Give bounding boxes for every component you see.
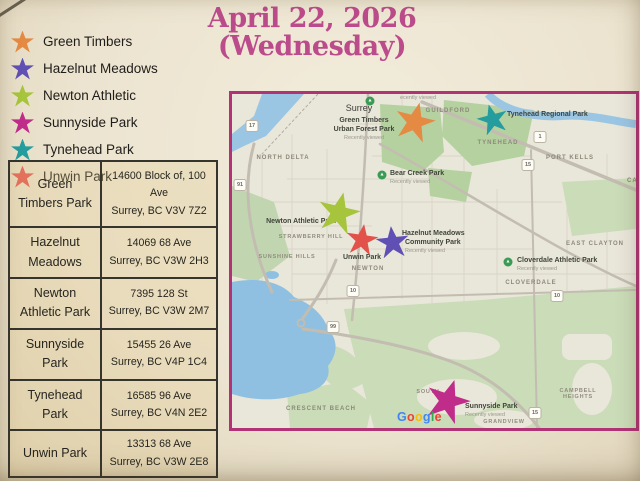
table-row: Sunnyside Park 15455 26 Ave Surrey, BC V… <box>9 329 217 380</box>
highway-shield: 1 <box>534 131 547 143</box>
table-row: Hazelnut Meadows 14069 68 Ave Surrey, BC… <box>9 227 217 278</box>
map-label: PORT KELLS <box>546 155 594 162</box>
legend-star-icon <box>11 58 34 80</box>
marker-star-green-timbers <box>391 98 439 145</box>
marker-star-unwin <box>344 222 380 257</box>
park-address-cell: 13313 68 Ave Surrey, BC V3W 2E8 <box>101 430 217 477</box>
legend-star-icon <box>11 31 34 53</box>
page-corner-mark <box>0 0 29 18</box>
address-line-2: Surrey, BC V3W 2M7 <box>106 303 212 320</box>
page-title: April 22, 2026 (Wednesday) <box>182 5 442 60</box>
table-row: Newton Athletic Park 7395 128 St Surrey,… <box>9 278 217 329</box>
map-label: Bear Creek Park <box>390 170 444 178</box>
map-label: EAST CLAYTON <box>566 241 624 248</box>
address-line-1: 13313 68 Ave <box>106 436 212 453</box>
map-label: Recently viewed <box>465 412 505 418</box>
map-label: Unwin Park <box>343 254 381 262</box>
map-label: SUNSHINE HILLS <box>258 254 315 260</box>
park-name-cell: Hazelnut Meadows <box>9 227 101 278</box>
legend-item-label: Newton Athletic <box>43 88 136 103</box>
map-label: Recently viewed <box>517 266 557 272</box>
map-label: NEWTON <box>352 266 385 273</box>
map-label: STRAWBERRY HILL <box>279 234 344 240</box>
highway-shield: 10 <box>347 285 360 297</box>
google-watermark-letter: e <box>435 410 442 424</box>
table-row: Unwin Park 13313 68 Ave Surrey, BC V3W 2… <box>9 430 217 477</box>
photographed-flyer: April 22, 2026 (Wednesday) Green Timbers… <box>0 0 640 481</box>
google-watermark-letter: g <box>423 410 431 424</box>
map-label: Green Timbers <box>339 117 388 125</box>
park-icon: ▲ <box>504 258 513 267</box>
title-date: April 22, 2026 <box>182 5 442 33</box>
address-line-2: Surrey, BC V3W 2H3 <box>106 253 212 270</box>
marker-star-newton-athletic <box>314 188 364 236</box>
map-label: NORTH DELTA <box>256 155 309 162</box>
highway-shield: 15 <box>522 159 535 171</box>
map-label: Hazelnut Meadows <box>402 230 465 238</box>
park-name-cell: Unwin Park <box>9 430 101 477</box>
highway-shield: 17 <box>246 120 259 132</box>
highway-shield: 91 <box>234 179 247 191</box>
address-line-2: Surrey, BC V4N 2E2 <box>106 405 212 422</box>
map-label: Surrey <box>346 104 373 114</box>
legend-item: Hazelnut Meadows <box>11 55 158 82</box>
address-line-2: Surrey, BC V3V 7Z2 <box>106 203 212 220</box>
park-address-cell: 15455 26 Ave Surrey, BC V4P 1C4 <box>101 329 217 380</box>
google-watermark-letter: o <box>415 410 423 424</box>
park-name-cell: Newton Athletic Park <box>9 278 101 329</box>
address-line-2: Surrey, BC V4P 1C4 <box>106 354 212 371</box>
map-label: GUILDFORD <box>426 108 471 115</box>
map-label: Sunnyside Park <box>465 403 518 411</box>
map-label: CRESCENT BEACH <box>286 406 356 413</box>
legend-item-label: Sunnyside Park <box>43 115 138 130</box>
park-address-cell: 16585 96 Ave Surrey, BC V4N 2E2 <box>101 380 217 431</box>
legend-item: Newton Athletic <box>11 82 158 109</box>
google-watermark: Google <box>397 410 442 424</box>
highway-shield: 10 <box>551 290 564 302</box>
address-line-1: 14600 Block of, 100 Ave <box>106 168 212 203</box>
google-watermark-letter: G <box>397 410 407 424</box>
address-line-1: 16585 96 Ave <box>106 388 212 405</box>
map-label: ecently viewed <box>400 95 436 101</box>
map-label: HEIGHTS <box>563 394 593 400</box>
google-watermark-letter: o <box>407 410 415 424</box>
legend-item: Green Timbers <box>11 28 158 55</box>
legend-star-icon <box>11 85 34 107</box>
legend-item-label: Hazelnut Meadows <box>43 61 158 76</box>
map-label: Recently viewed <box>390 179 430 185</box>
address-line-1: 14069 68 Ave <box>106 235 212 252</box>
address-line-2: Surrey, BC V3W 2E8 <box>106 454 212 471</box>
legend-star-icon <box>11 112 34 134</box>
map-label: CLOVERDALE <box>505 280 556 287</box>
address-line-1: 15455 26 Ave <box>106 337 212 354</box>
title-day: (Wednesday) <box>182 33 442 61</box>
park-icon: ▲ <box>378 171 387 180</box>
legend-item-label: Green Timbers <box>43 34 132 49</box>
parks-table: Green Timbers Park 14600 Block of, 100 A… <box>8 160 218 478</box>
parks-table-body: Green Timbers Park 14600 Block of, 100 A… <box>9 161 217 477</box>
legend-item: Tynehead Park <box>11 136 158 163</box>
google-map-screenshot: ▲▲▲ecently viewedSurreyGUILDFORDGreen Ti… <box>229 91 639 431</box>
park-name-cell: Tynehead Park <box>9 380 101 431</box>
table-row: Tynehead Park 16585 96 Ave Surrey, BC V4… <box>9 380 217 431</box>
marker-star-tynehead <box>473 101 511 137</box>
map-label: Tynehead Regional Park <box>507 111 588 119</box>
park-name-cell: Sunnyside Park <box>9 329 101 380</box>
map-label: GRANDVIEW <box>483 419 524 425</box>
highway-shield: 99 <box>327 321 340 333</box>
map-overlays: ▲▲▲ecently viewedSurreyGUILDFORDGreen Ti… <box>232 94 636 428</box>
map-label: CAR <box>627 178 639 185</box>
map-label: TYNEHEAD <box>477 140 518 147</box>
park-address-cell: 14600 Block of, 100 Ave Surrey, BC V3V 7… <box>101 161 217 227</box>
table-row: Green Timbers Park 14600 Block of, 100 A… <box>9 161 217 227</box>
map-label: Recently viewed <box>405 248 445 254</box>
address-line-1: 7395 128 St <box>106 286 212 303</box>
park-address-cell: 7395 128 St Surrey, BC V3W 2M7 <box>101 278 217 329</box>
map-label: Community Park <box>405 239 461 247</box>
map-label: Urban Forest Park <box>334 126 395 134</box>
map-label: Cloverdale Athletic Park <box>517 257 597 265</box>
legend-star-icon <box>11 139 34 161</box>
legend-item-label: Tynehead Park <box>43 142 134 157</box>
park-name-cell: Green Timbers Park <box>9 161 101 227</box>
park-address-cell: 14069 68 Ave Surrey, BC V3W 2H3 <box>101 227 217 278</box>
legend-item: Sunnyside Park <box>11 109 158 136</box>
highway-shield: 15 <box>529 407 542 419</box>
map-label: Recently viewed <box>344 135 384 141</box>
